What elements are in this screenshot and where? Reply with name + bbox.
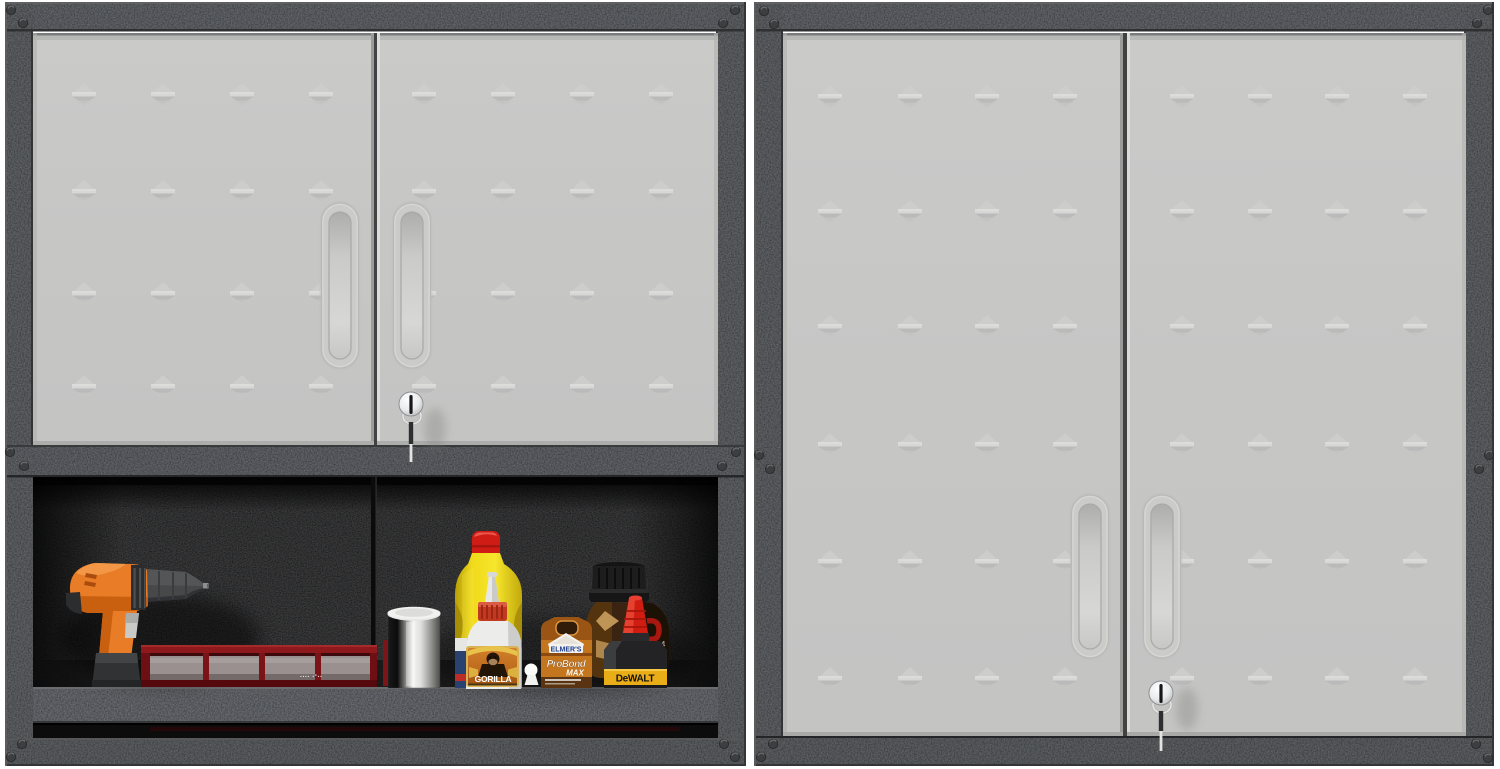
svg-text:.... .-..: .... .-.. (300, 672, 322, 679)
svg-text:DeWALT: DeWALT (616, 674, 655, 685)
svg-text:ELMER'S: ELMER'S (551, 647, 582, 654)
svg-text:MAX: MAX (566, 669, 584, 678)
svg-text:GORILLA: GORILLA (475, 674, 512, 684)
